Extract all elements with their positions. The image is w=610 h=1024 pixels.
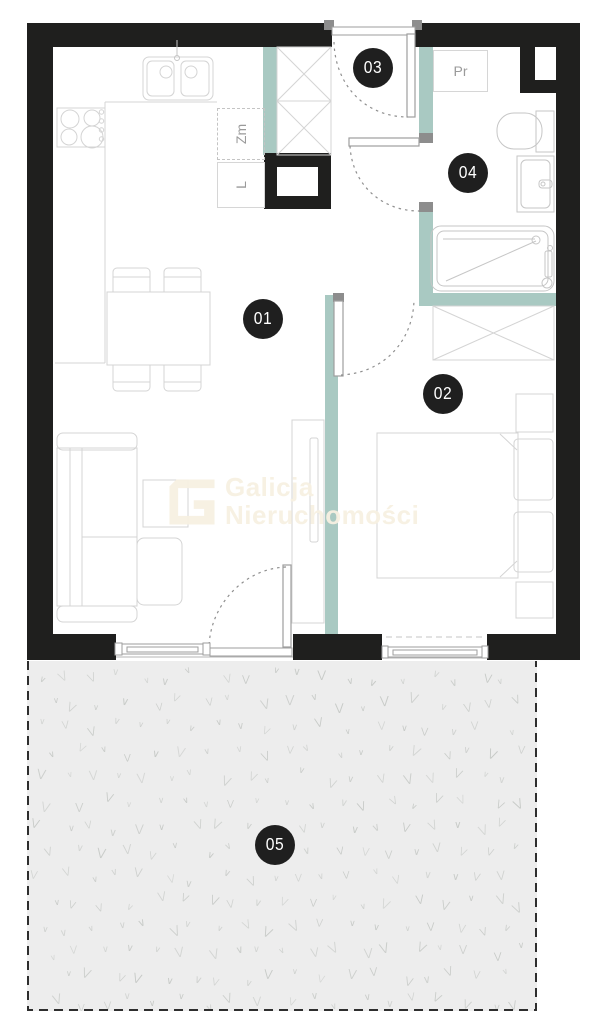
balcony-door-swing <box>209 567 287 651</box>
washing-machine-label: Pr <box>454 63 468 79</box>
stove <box>57 108 105 148</box>
balcony-door <box>209 565 292 656</box>
dishwasher-label: Zm <box>233 124 249 144</box>
corner-sofa <box>57 433 188 622</box>
pillow <box>514 439 553 500</box>
room-label-01: 01 <box>243 299 283 339</box>
bathroom-door-leaf <box>349 138 419 146</box>
bathtub <box>431 226 554 291</box>
entrance-door-leaf <box>407 34 415 117</box>
bedroom-door-swing <box>341 300 414 375</box>
coffee-table <box>143 480 188 527</box>
plan-lineart <box>0 0 610 1024</box>
bedroom-wardrobe <box>433 306 554 360</box>
dishwasher-box: Zm <box>217 108 265 160</box>
bathroom-sink <box>517 156 554 212</box>
hall-wardrobe <box>277 47 331 155</box>
balcony-door-leaf <box>283 565 291 647</box>
fridge-label: L <box>233 181 249 189</box>
faucet-icon <box>175 56 180 61</box>
toilet <box>497 111 554 152</box>
bedroom-door <box>334 300 414 376</box>
bathroom-door-swing <box>350 146 419 211</box>
tv-cabinet <box>292 420 324 623</box>
room-label-04: 04 <box>448 153 488 193</box>
bathroom-door <box>349 138 419 211</box>
nightstand-top <box>516 394 553 432</box>
entrance-door-frame <box>332 27 415 35</box>
floor-plan: ∨⋁⋁∨∨∨∨⋁⋁∨∨⋁∨∨∨∨∨⋁∨∨⋁∨∨⋁⋁⋁∨⋁⋁∨⋁∨⋁⋁∨⋁⋁⋁∨⋁… <box>0 0 610 1024</box>
sofa-chaise <box>137 538 182 605</box>
bedroom-window <box>382 637 488 658</box>
bed <box>377 394 553 618</box>
bedroom-door-leaf <box>334 301 343 376</box>
fridge-box: L <box>217 162 265 208</box>
dining-set <box>107 268 210 391</box>
nightstand-bottom <box>516 582 553 618</box>
washing-machine-box: Pr <box>433 50 488 92</box>
room-label-05: 05 <box>255 825 295 865</box>
balcony-threshold <box>210 648 292 656</box>
dining-table <box>107 292 210 365</box>
pillow <box>514 512 553 572</box>
tv-icon <box>310 438 318 542</box>
room-label-03: 03 <box>353 48 393 88</box>
kitchen-sink <box>143 40 213 100</box>
room-label-02: 02 <box>423 374 463 414</box>
